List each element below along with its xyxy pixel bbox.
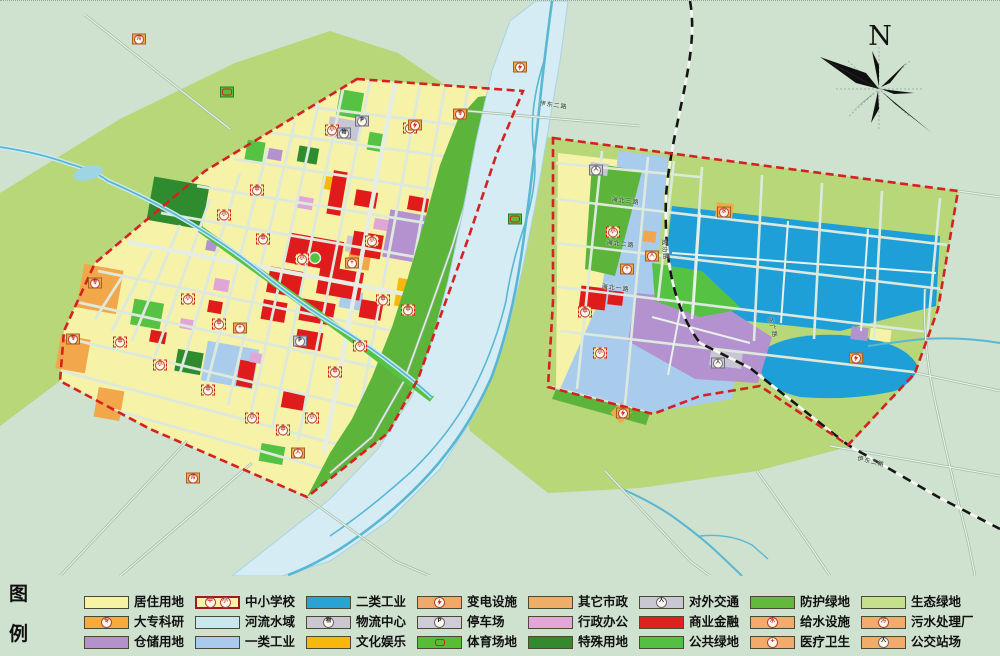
school-icon: 中 <box>250 185 264 196</box>
legend-swatch <box>750 596 795 609</box>
school-icon: 小 <box>365 236 379 247</box>
legend-label: 对外交通 <box>689 596 739 609</box>
legend-item: 水给水设施 <box>750 612 861 632</box>
legend-item: P停车场 <box>417 612 528 632</box>
college-icon: 专 <box>453 109 467 120</box>
parking-icon: P <box>355 116 369 127</box>
legend-column: 防护绿地水给水设施+医疗卫生 <box>750 592 861 652</box>
legend-swatch <box>639 616 684 629</box>
legend-swatch <box>84 636 129 649</box>
college-icon: 专 <box>88 278 102 289</box>
legend-swatch <box>528 616 573 629</box>
legend-swatch <box>195 616 240 629</box>
parking-icon: P <box>293 336 307 347</box>
school-icon: 小 <box>305 413 319 424</box>
legend-swatch: P <box>417 616 462 629</box>
legend-swatch <box>306 596 351 609</box>
legend-swatch: 专 <box>84 616 129 629</box>
legend: 图 例 居住用地专大专科研仓储用地中小中小学校河流水域一类工业二类工业物物流中心… <box>0 584 1000 656</box>
legend-item: 污污水处理厂 <box>861 612 979 632</box>
hospital-icon: + <box>345 258 359 269</box>
legend-item: 特殊用地 <box>528 632 639 652</box>
legend-swatch <box>417 596 462 609</box>
legend-swatch: + <box>750 636 795 649</box>
hospital-icon: + <box>620 264 634 275</box>
legend-item: +医疗卫生 <box>750 632 861 652</box>
school-icon: 小 <box>153 360 167 371</box>
hospital-icon: + <box>233 323 247 334</box>
school-icon: 中 <box>276 425 290 436</box>
legend-label: 给水设施 <box>800 616 850 629</box>
legend-item: 人公交站场 <box>861 632 979 652</box>
legend-label: 行政办公 <box>578 616 628 629</box>
legend-label: 特殊用地 <box>578 636 628 649</box>
substation-icon <box>513 62 527 73</box>
planning-map-page: N 小中中小中小中小中小中小中小中小中小中小中小专专专+++水污污PP物人人人人… <box>0 0 1000 656</box>
legend-swatch <box>528 636 573 649</box>
legend-column: 变电设施P停车场体育场地 <box>417 592 528 652</box>
legend-title-char-2: 例 <box>9 625 35 644</box>
school-icon: 小 <box>593 348 607 359</box>
legend-label: 仓储用地 <box>134 636 184 649</box>
legend-item: 人对外交通 <box>639 592 750 612</box>
logistics-icon: 物 <box>337 128 351 139</box>
legend-item: 中小中小学校 <box>195 592 306 612</box>
legend-label: 物流中心 <box>356 616 406 629</box>
legend-label: 污水处理厂 <box>911 616 974 629</box>
substation-icon <box>849 353 863 364</box>
legend-label: 变电设施 <box>467 596 517 609</box>
legend-swatch: 水 <box>750 616 795 629</box>
legend-label: 防护绿地 <box>800 596 850 609</box>
north-label: N <box>862 23 898 50</box>
sports-icon <box>508 214 522 225</box>
legend-label: 体育场地 <box>467 636 517 649</box>
legend-label: 商业金融 <box>689 616 739 629</box>
water-icon: 水 <box>717 207 731 218</box>
school-icon: 中 <box>376 295 390 306</box>
legend-item: 仓储用地 <box>84 632 195 652</box>
legend-label: 医疗卫生 <box>800 636 850 649</box>
legend-label: 居住用地 <box>134 596 184 609</box>
sewage-icon: 污 <box>186 473 200 484</box>
legend-item: 一类工业 <box>195 632 306 652</box>
legend-swatch: 污 <box>861 616 906 629</box>
legend-swatch <box>195 636 240 649</box>
school-icon: 小 <box>181 294 195 305</box>
substation-icon <box>408 120 422 131</box>
legend-item: 其它市政 <box>528 592 639 612</box>
legend-column: 居住用地专大专科研仓储用地 <box>84 592 195 652</box>
school-icon: 小 <box>353 341 367 352</box>
school-icon: 中 <box>212 319 226 330</box>
substation-icon <box>616 408 630 419</box>
school-icon: 中 <box>401 305 415 316</box>
college-icon: 专 <box>66 334 80 345</box>
legend-item: 生态绿地 <box>861 592 979 612</box>
legend-swatch <box>306 636 351 649</box>
legend-item: 二类工业 <box>306 592 417 612</box>
bus-icon: 人 <box>291 448 305 459</box>
legend-swatch <box>417 636 462 649</box>
legend-item: 专大专科研 <box>84 612 195 632</box>
school-icon: 小 <box>606 227 620 238</box>
school-icon: 中 <box>113 337 127 348</box>
legend-item: 防护绿地 <box>750 592 861 612</box>
legend-item: 居住用地 <box>84 592 195 612</box>
legend-column: 人对外交通商业金融公共绿地 <box>639 592 750 652</box>
school-icon: 中 <box>256 234 270 245</box>
school-icon: 小 <box>295 254 309 265</box>
school-icon: 中 <box>328 367 342 378</box>
legend-swatch <box>861 596 906 609</box>
legend-label: 文化娱乐 <box>356 636 406 649</box>
legend-column: 其它市政行政办公特殊用地 <box>528 592 639 652</box>
road-label: 成功路 <box>660 239 668 260</box>
planning-map <box>0 1 1000 576</box>
legend-label: 中小学校 <box>245 596 295 609</box>
legend-column: 二类工业物物流中心文化娱乐 <box>306 592 417 652</box>
legend-label: 二类工业 <box>356 596 406 609</box>
legend-label: 河流水域 <box>245 616 295 629</box>
legend-title: 图 例 <box>9 585 35 644</box>
legend-item: 商业金融 <box>639 612 750 632</box>
transport-icon: 人 <box>589 165 603 176</box>
legend-swatch: 物 <box>306 616 351 629</box>
transport-icon: 人 <box>711 358 725 369</box>
legend-label: 公交站场 <box>911 636 961 649</box>
legend-label: 停车场 <box>467 616 505 629</box>
legend-label: 大专科研 <box>134 616 184 629</box>
legend-swatch: 人 <box>639 596 684 609</box>
school-icon: 中 <box>578 307 592 318</box>
legend-swatch: 中小 <box>195 596 240 609</box>
school-icon: 小 <box>245 413 259 424</box>
legend-item: 公共绿地 <box>639 632 750 652</box>
legend-column: 生态绿地污污水处理厂人公交站场 <box>861 592 979 652</box>
legend-label: 其它市政 <box>578 596 628 609</box>
legend-title-char-1: 图 <box>9 584 28 605</box>
legend-swatch: 人 <box>861 636 906 649</box>
school-icon: 小 <box>217 210 231 221</box>
legend-label: 公共绿地 <box>689 636 739 649</box>
legend-item: 文化娱乐 <box>306 632 417 652</box>
legend-swatch <box>639 636 684 649</box>
legend-label: 一类工业 <box>245 636 295 649</box>
sewage-icon: 污 <box>132 34 146 45</box>
legend-item: 河流水域 <box>195 612 306 632</box>
legend-swatch <box>528 596 573 609</box>
legend-swatch <box>84 596 129 609</box>
legend-item: 体育场地 <box>417 632 528 652</box>
bus-icon: 人 <box>645 251 659 262</box>
legend-item: 变电设施 <box>417 592 528 612</box>
legend-label: 生态绿地 <box>911 596 961 609</box>
legend-column: 中小中小学校河流水域一类工业 <box>195 592 306 652</box>
legend-item: 物物流中心 <box>306 612 417 632</box>
school-icon: 中 <box>201 385 215 396</box>
sports-icon <box>220 87 234 98</box>
legend-item: 行政办公 <box>528 612 639 632</box>
